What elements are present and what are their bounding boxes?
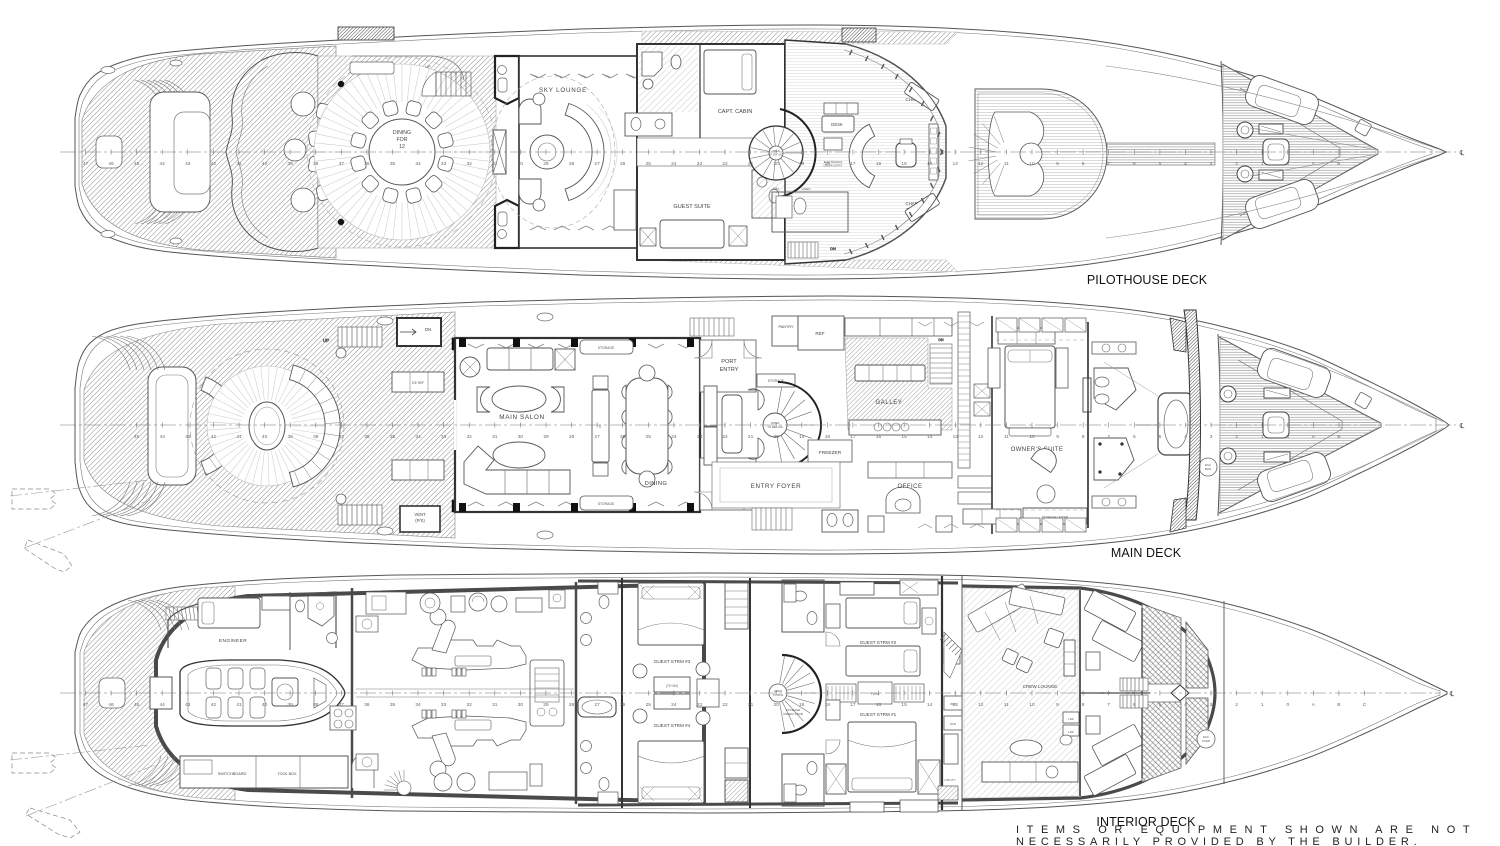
svg-text:16: 16 bbox=[876, 161, 882, 167]
svg-text:3: 3 bbox=[1210, 161, 1213, 167]
svg-text:UNDER STAIR: UNDER STAIR bbox=[783, 712, 804, 716]
svg-text:14: 14 bbox=[927, 434, 933, 440]
svg-text:23: 23 bbox=[697, 702, 703, 708]
svg-text:13: 13 bbox=[953, 434, 959, 440]
svg-text:22: 22 bbox=[722, 161, 728, 167]
svg-text:32: 32 bbox=[467, 434, 473, 440]
svg-text:1: 1 bbox=[1261, 161, 1264, 167]
svg-text:25: 25 bbox=[646, 161, 652, 167]
svg-text:7: 7 bbox=[1107, 702, 1110, 708]
svg-text:(TV+AV): (TV+AV) bbox=[666, 684, 678, 688]
svg-text:46: 46 bbox=[108, 161, 114, 167]
svg-text:B: B bbox=[1337, 161, 1340, 167]
svg-text:4: 4 bbox=[1184, 702, 1187, 708]
svg-text:24: 24 bbox=[671, 702, 677, 708]
svg-text:37: 37 bbox=[339, 161, 345, 167]
svg-text:37: 37 bbox=[339, 702, 345, 708]
svg-text:28: 28 bbox=[569, 161, 575, 167]
svg-text:39: 39 bbox=[288, 434, 294, 440]
svg-text:30: 30 bbox=[518, 161, 524, 167]
svg-text:27: 27 bbox=[594, 161, 600, 167]
svg-text:20: 20 bbox=[774, 702, 780, 708]
svg-text:6: 6 bbox=[1133, 434, 1136, 440]
svg-text:21: 21 bbox=[748, 161, 754, 167]
svg-text:14: 14 bbox=[927, 161, 933, 167]
svg-text:ENTRY: ENTRY bbox=[720, 367, 739, 373]
svg-text:6: 6 bbox=[1133, 161, 1136, 167]
svg-text:27: 27 bbox=[594, 434, 600, 440]
svg-text:10: 10 bbox=[1029, 161, 1035, 167]
svg-text:SKY LOUNGE: SKY LOUNGE bbox=[539, 87, 587, 94]
svg-text:43: 43 bbox=[185, 434, 191, 440]
svg-text:CREW LOUNGE: CREW LOUNGE bbox=[1023, 684, 1058, 689]
svg-text:9: 9 bbox=[1056, 702, 1059, 708]
svg-text:REF: REF bbox=[815, 331, 824, 336]
svg-text:B: B bbox=[1337, 434, 1340, 440]
svg-text:29: 29 bbox=[543, 434, 549, 440]
svg-text:2: 2 bbox=[1235, 161, 1238, 167]
svg-text:LKR: LKR bbox=[1068, 717, 1073, 721]
svg-text:43: 43 bbox=[185, 702, 191, 708]
svg-text:28: 28 bbox=[569, 702, 575, 708]
svg-text:40: 40 bbox=[262, 702, 268, 708]
svg-text:ITEMS OR EQUIPMENT SHOWN ARE N: ITEMS OR EQUIPMENT SHOWN ARE NOT bbox=[1016, 824, 1477, 836]
svg-text:3: 3 bbox=[1210, 702, 1213, 708]
svg-text:16: 16 bbox=[876, 702, 882, 708]
svg-text:18: 18 bbox=[825, 434, 831, 440]
svg-text:DN: DN bbox=[830, 246, 836, 251]
svg-text:LINEN: LINEN bbox=[802, 187, 811, 191]
svg-text:44: 44 bbox=[160, 161, 166, 167]
svg-text:22: 22 bbox=[722, 434, 728, 440]
svg-text:47: 47 bbox=[83, 702, 89, 708]
svg-text:19: 19 bbox=[799, 434, 805, 440]
svg-text:VENT: VENT bbox=[414, 512, 426, 517]
svg-text:OVER: OVER bbox=[1202, 739, 1210, 743]
svg-text:25: 25 bbox=[646, 434, 652, 440]
svg-text:C: C bbox=[1363, 702, 1367, 708]
svg-text:SWITCHBOARD: SWITCHBOARD bbox=[218, 772, 247, 776]
svg-text:1: 1 bbox=[1261, 434, 1264, 440]
svg-text:11: 11 bbox=[1004, 702, 1009, 708]
svg-text:0: 0 bbox=[1286, 434, 1289, 440]
svg-text:GALLEY: GALLEY bbox=[876, 400, 903, 406]
svg-text:18: 18 bbox=[825, 161, 831, 167]
svg-text:26: 26 bbox=[620, 161, 626, 167]
svg-text:GUEST STRM #1: GUEST STRM #1 bbox=[860, 712, 897, 717]
svg-text:TV/AV: TV/AV bbox=[871, 692, 881, 696]
svg-text:46: 46 bbox=[108, 702, 114, 708]
svg-text:TO BLW: TO BLW bbox=[773, 693, 784, 697]
svg-text:10: 10 bbox=[1029, 702, 1035, 708]
svg-text:5: 5 bbox=[1159, 161, 1162, 167]
svg-text:29: 29 bbox=[543, 161, 549, 167]
svg-text:31: 31 bbox=[492, 434, 498, 440]
svg-text:GUEST STRM #2: GUEST STRM #2 bbox=[860, 640, 897, 645]
svg-text:STORAGE: STORAGE bbox=[598, 346, 615, 350]
svg-text:38: 38 bbox=[313, 434, 319, 440]
svg-text:32: 32 bbox=[467, 702, 473, 708]
svg-text:44: 44 bbox=[160, 702, 166, 708]
svg-text:0: 0 bbox=[1286, 161, 1289, 167]
svg-text:34: 34 bbox=[415, 434, 421, 440]
svg-text:℄: ℄ bbox=[1459, 150, 1465, 157]
svg-text:41: 41 bbox=[236, 434, 242, 440]
svg-text:44: 44 bbox=[160, 434, 166, 440]
svg-text:NECESSARILY PROVIDED BY THE BU: NECESSARILY PROVIDED BY THE BUILDER. bbox=[1016, 836, 1422, 846]
svg-text:DESK: DESK bbox=[831, 122, 843, 127]
svg-text:9: 9 bbox=[1056, 434, 1059, 440]
svg-text:12: 12 bbox=[978, 434, 984, 440]
svg-text:DN: DN bbox=[938, 338, 944, 342]
svg-text:ICE REF: ICE REF bbox=[412, 381, 425, 385]
svg-text:21: 21 bbox=[748, 434, 754, 440]
svg-text:12: 12 bbox=[399, 144, 405, 150]
svg-text:(P/S): (P/S) bbox=[415, 518, 425, 523]
svg-text:35: 35 bbox=[390, 161, 396, 167]
svg-text:7: 7 bbox=[1107, 434, 1110, 440]
svg-text:MAIN SALON: MAIN SALON bbox=[499, 414, 544, 421]
svg-text:DN: DN bbox=[425, 327, 431, 332]
svg-text:B: B bbox=[1337, 702, 1340, 708]
svg-text:45: 45 bbox=[134, 434, 140, 440]
svg-text:LKR: LKR bbox=[1068, 730, 1073, 734]
svg-text:℄: ℄ bbox=[1459, 423, 1465, 430]
svg-text:7: 7 bbox=[1107, 161, 1110, 167]
svg-text:37: 37 bbox=[339, 434, 345, 440]
svg-text:2: 2 bbox=[1235, 702, 1238, 708]
svg-text:9: 9 bbox=[1056, 161, 1059, 167]
svg-text:31: 31 bbox=[492, 702, 498, 708]
svg-text:45: 45 bbox=[134, 702, 140, 708]
svg-text:10: 10 bbox=[1029, 434, 1035, 440]
svg-text:DINING: DINING bbox=[645, 481, 668, 487]
svg-text:GUEST STRM #4: GUEST STRM #4 bbox=[654, 723, 691, 728]
svg-text:43: 43 bbox=[185, 161, 191, 167]
svg-text:16: 16 bbox=[876, 434, 882, 440]
svg-text:DINING: DINING bbox=[393, 130, 411, 136]
svg-text:6: 6 bbox=[1133, 702, 1136, 708]
svg-text:CAPT. CABIN: CAPT. CABIN bbox=[718, 109, 753, 115]
svg-text:42: 42 bbox=[211, 434, 217, 440]
svg-text:28: 28 bbox=[569, 434, 575, 440]
svg-text:TOOL BOX: TOOL BOX bbox=[277, 772, 297, 776]
svg-text:ENTRY FOYER: ENTRY FOYER bbox=[751, 483, 801, 490]
svg-text:8: 8 bbox=[1082, 161, 1085, 167]
svg-text:21: 21 bbox=[748, 702, 754, 708]
svg-text:W/D: W/D bbox=[950, 722, 957, 726]
svg-text:FOR: FOR bbox=[397, 137, 408, 143]
svg-text:S: S bbox=[599, 425, 601, 429]
svg-text:40: 40 bbox=[262, 161, 268, 167]
svg-text:13: 13 bbox=[953, 161, 959, 167]
svg-text:12: 12 bbox=[978, 702, 984, 708]
svg-text:FREEZER: FREEZER bbox=[819, 450, 842, 456]
svg-text:36: 36 bbox=[364, 161, 370, 167]
svg-text:42: 42 bbox=[211, 161, 217, 167]
svg-text:OFFICE: OFFICE bbox=[898, 484, 923, 490]
svg-text:ENGINEER: ENGINEER bbox=[219, 638, 247, 644]
svg-text:1: 1 bbox=[1261, 702, 1264, 708]
svg-text:23: 23 bbox=[697, 161, 703, 167]
svg-text:19: 19 bbox=[799, 702, 805, 708]
svg-text:33: 33 bbox=[441, 161, 447, 167]
svg-text:33: 33 bbox=[441, 434, 447, 440]
svg-text:8: 8 bbox=[1082, 434, 1085, 440]
svg-text:17: 17 bbox=[850, 161, 856, 167]
svg-text:DN: DN bbox=[773, 187, 779, 191]
svg-text:17: 17 bbox=[850, 434, 856, 440]
svg-text:36: 36 bbox=[364, 434, 370, 440]
svg-text:27: 27 bbox=[594, 702, 600, 708]
svg-text:38: 38 bbox=[313, 702, 319, 708]
svg-text:15: 15 bbox=[901, 702, 907, 708]
svg-text:UP: UP bbox=[425, 65, 431, 69]
svg-text:40: 40 bbox=[262, 434, 268, 440]
svg-text:MAIN DECK: MAIN DECK bbox=[1111, 546, 1182, 560]
svg-text:39: 39 bbox=[287, 702, 293, 708]
svg-text:19: 19 bbox=[799, 161, 805, 167]
svg-text:24: 24 bbox=[671, 434, 677, 440]
svg-text:26: 26 bbox=[620, 434, 626, 440]
svg-text:GUEST SUITE: GUEST SUITE bbox=[673, 204, 710, 210]
svg-text:22: 22 bbox=[722, 702, 728, 708]
svg-text:20: 20 bbox=[774, 161, 780, 167]
svg-text:41: 41 bbox=[236, 161, 242, 167]
svg-text:14: 14 bbox=[927, 702, 933, 708]
svg-text:26: 26 bbox=[620, 702, 626, 708]
svg-text:UP: UP bbox=[323, 338, 329, 343]
svg-text:12: 12 bbox=[978, 161, 984, 167]
svg-text:41: 41 bbox=[236, 702, 242, 708]
svg-text:20: 20 bbox=[774, 434, 780, 440]
svg-text:5: 5 bbox=[1159, 702, 1162, 708]
svg-text:15: 15 bbox=[901, 434, 907, 440]
svg-text:BLW: BLW bbox=[1205, 467, 1211, 471]
svg-text:29: 29 bbox=[543, 702, 549, 708]
svg-text:2: 2 bbox=[1235, 434, 1238, 440]
svg-text:℄: ℄ bbox=[1449, 691, 1455, 698]
svg-text:30: 30 bbox=[518, 434, 524, 440]
svg-text:TO BELOW: TO BELOW bbox=[767, 425, 783, 429]
svg-text:17: 17 bbox=[850, 702, 856, 708]
svg-text:35: 35 bbox=[390, 702, 396, 708]
svg-text:34: 34 bbox=[415, 161, 421, 167]
svg-text:13: 13 bbox=[953, 702, 959, 708]
svg-text:PORT: PORT bbox=[721, 359, 737, 365]
svg-text:5: 5 bbox=[1159, 434, 1162, 440]
svg-text:11: 11 bbox=[1004, 161, 1009, 167]
svg-text:39: 39 bbox=[287, 161, 293, 167]
svg-text:36: 36 bbox=[364, 702, 370, 708]
svg-text:33: 33 bbox=[441, 702, 447, 708]
svg-text:24: 24 bbox=[671, 161, 677, 167]
svg-text:0: 0 bbox=[1286, 702, 1289, 708]
svg-text:47: 47 bbox=[83, 161, 89, 167]
svg-text:3: 3 bbox=[1210, 434, 1213, 440]
svg-text:45: 45 bbox=[134, 161, 140, 167]
svg-text:18: 18 bbox=[825, 702, 831, 708]
svg-text:11: 11 bbox=[1004, 434, 1009, 440]
svg-text:PILOTHOUSE DECK: PILOTHOUSE DECK bbox=[1087, 273, 1208, 287]
svg-text:32: 32 bbox=[467, 161, 473, 167]
svg-text:42: 42 bbox=[211, 702, 217, 708]
svg-text:35: 35 bbox=[390, 434, 396, 440]
svg-text:25: 25 bbox=[646, 702, 652, 708]
svg-text:30: 30 bbox=[518, 702, 524, 708]
svg-text:15: 15 bbox=[901, 161, 907, 167]
svg-text:4: 4 bbox=[1184, 434, 1187, 440]
svg-text:PANTRY: PANTRY bbox=[778, 325, 794, 329]
svg-text:STORAGE: STORAGE bbox=[598, 502, 615, 506]
svg-text:23: 23 bbox=[697, 434, 703, 440]
svg-text:38: 38 bbox=[313, 161, 319, 167]
svg-text:GUEST STRM #3: GUEST STRM #3 bbox=[654, 659, 691, 664]
svg-text:UTILITY: UTILITY bbox=[944, 778, 955, 782]
svg-text:8: 8 bbox=[1082, 702, 1085, 708]
svg-text:4: 4 bbox=[1184, 161, 1187, 167]
svg-text:34: 34 bbox=[415, 702, 421, 708]
svg-text:31: 31 bbox=[492, 161, 498, 167]
